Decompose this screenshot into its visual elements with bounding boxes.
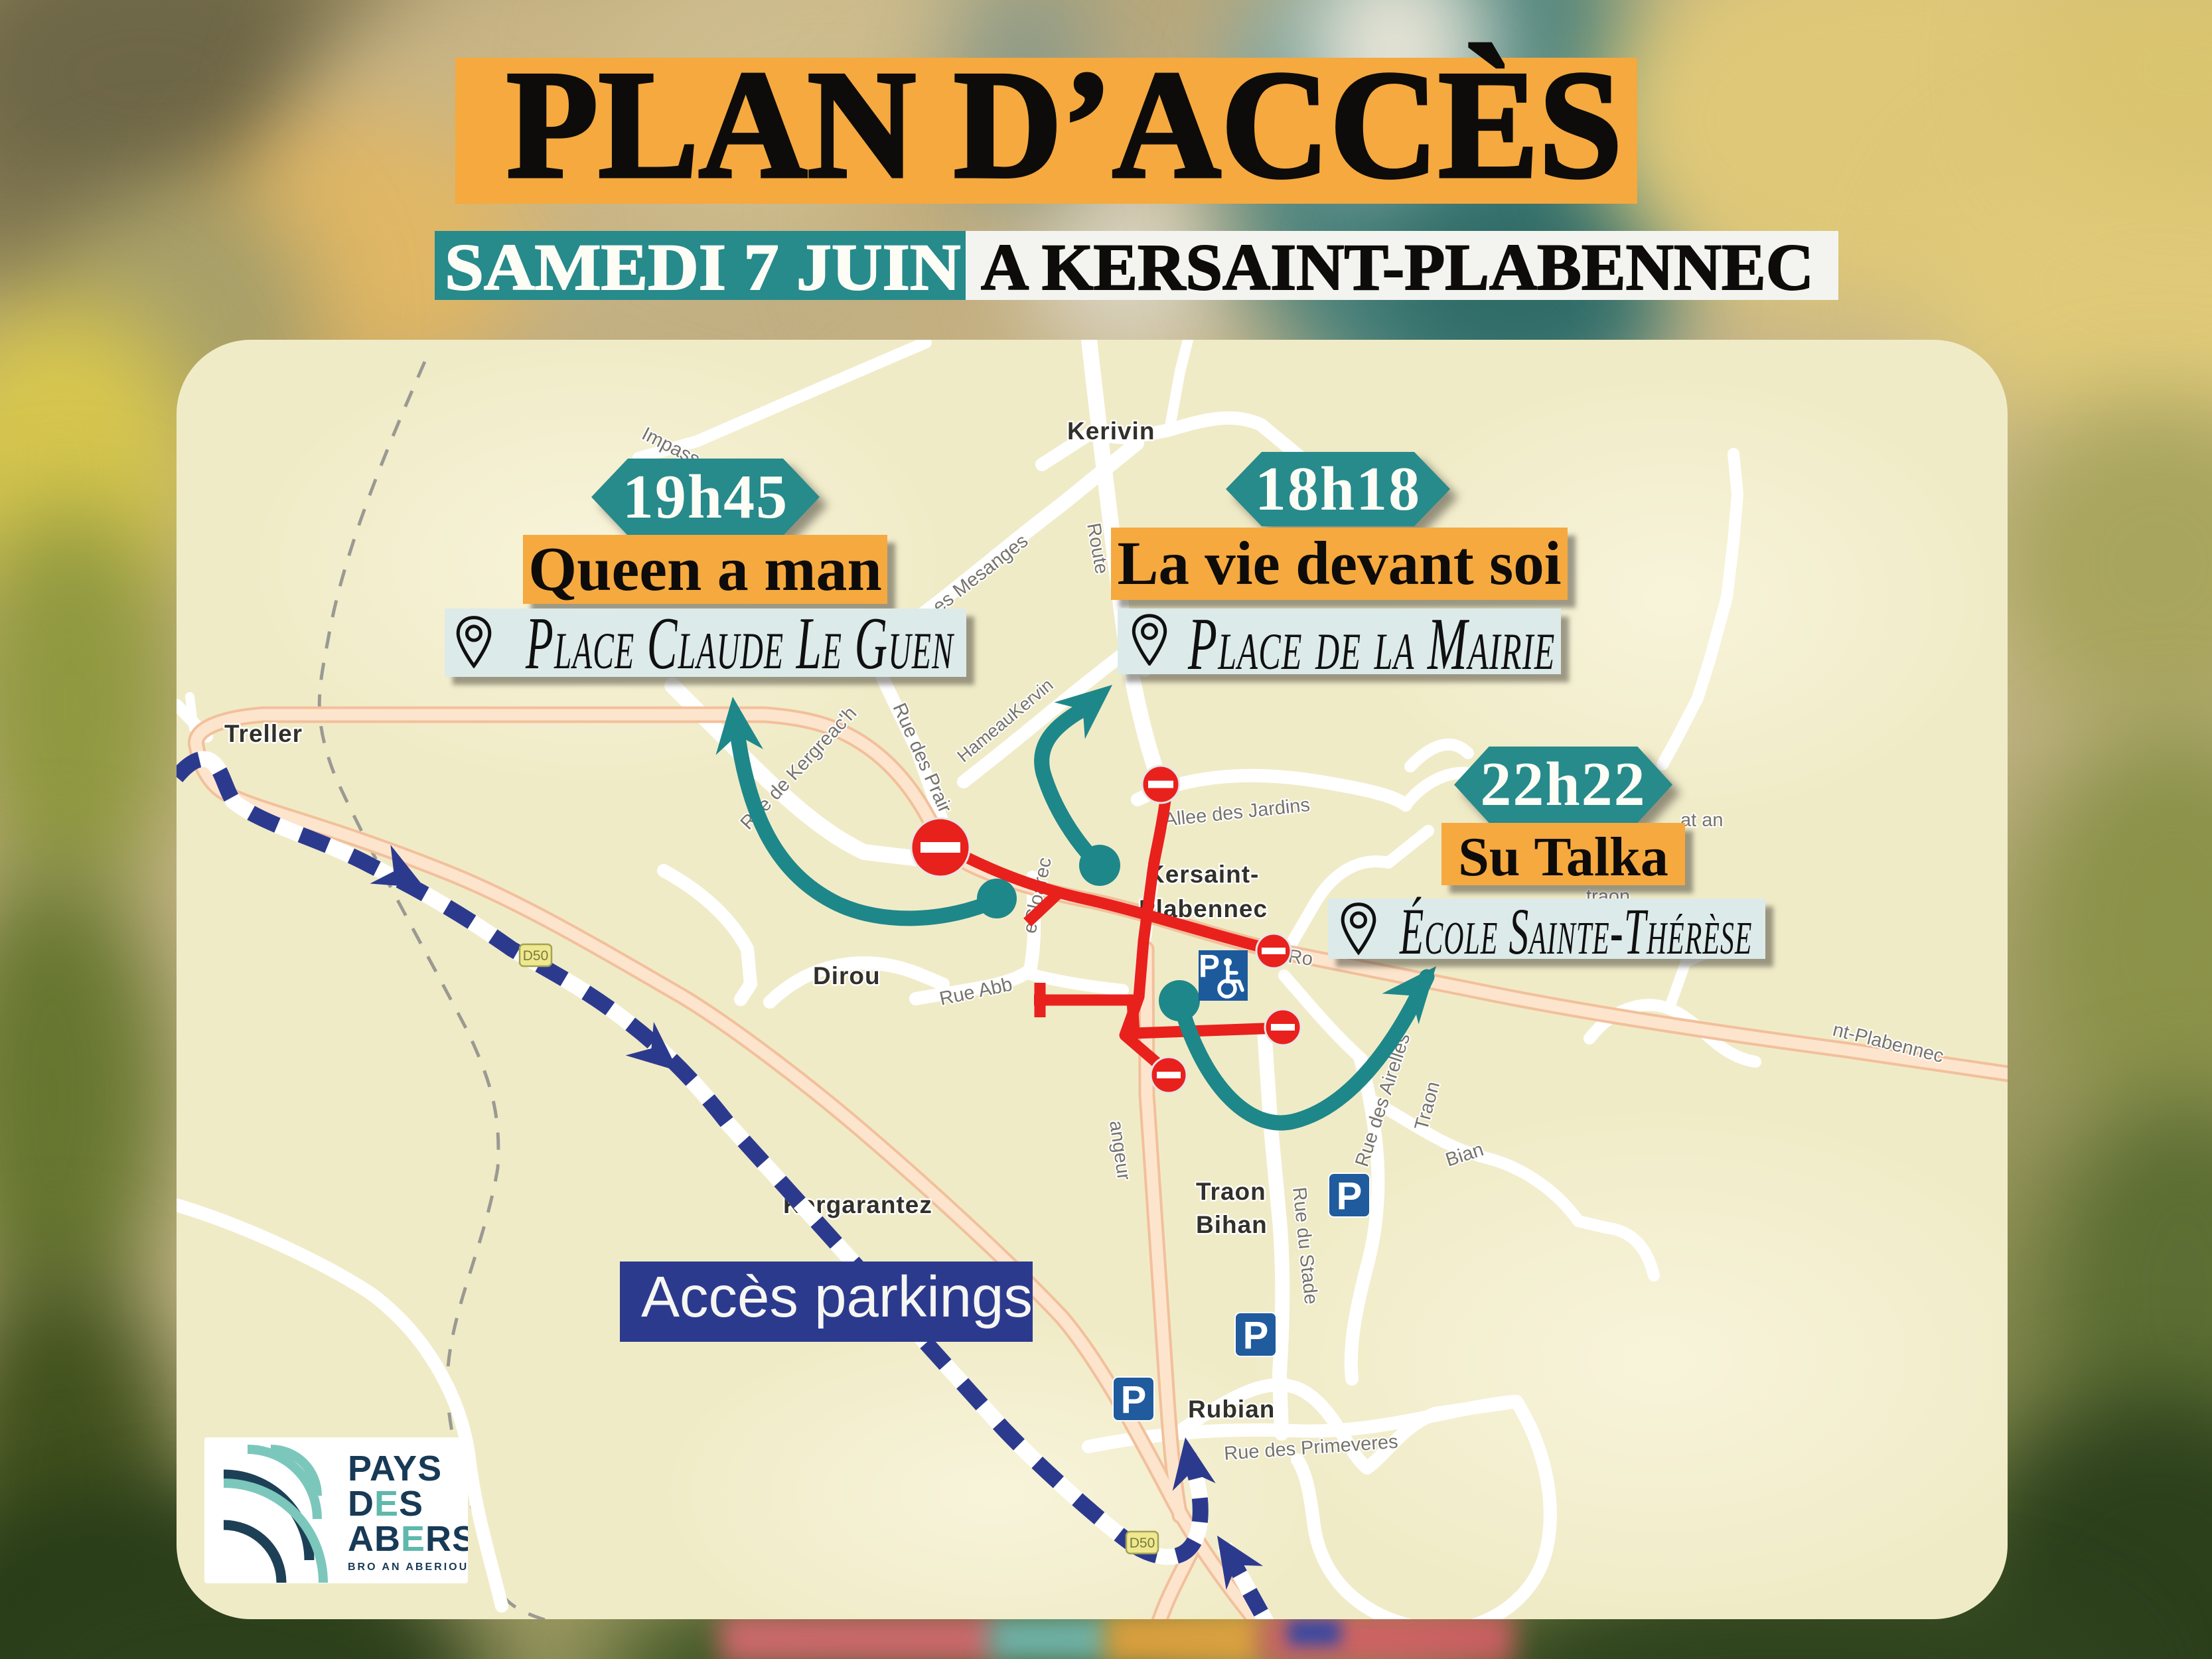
svg-text:Traon: Traon [1411,1079,1444,1132]
svg-text:BRO AN ABERIOU: BRO AN ABERIOU [348,1561,468,1573]
svg-text:P: P [1199,949,1220,984]
svg-text:Allee des Jardins: Allee des Jardins [1163,794,1311,831]
svg-text:Dirou: Dirou [813,962,881,989]
svg-text:ABERS: ABERS [348,1519,468,1559]
svg-text:angeur: angeur [1105,1119,1134,1182]
svg-text:PAYS: PAYS [348,1449,442,1488]
svg-text:Treller: Treller [224,720,303,747]
svg-text:Kersaint-: Kersaint- [1147,861,1259,888]
svg-text:Rubian: Rubian [1188,1396,1275,1423]
svg-text:P: P [1337,1175,1363,1218]
svg-text:P: P [1243,1314,1269,1357]
svg-text:D50: D50 [523,948,549,964]
svg-text:at an: at an [1680,810,1724,831]
svg-text:Rue Abb: Rue Abb [938,974,1014,1009]
svg-text:DES: DES [348,1484,423,1524]
svg-text:Bihan: Bihan [1196,1211,1268,1238]
svg-text:Kerivin: Kerivin [1067,417,1155,445]
svg-text:D50: D50 [1130,1536,1155,1551]
svg-text:P: P [1121,1378,1147,1421]
svg-text:Traon: Traon [1196,1178,1266,1205]
